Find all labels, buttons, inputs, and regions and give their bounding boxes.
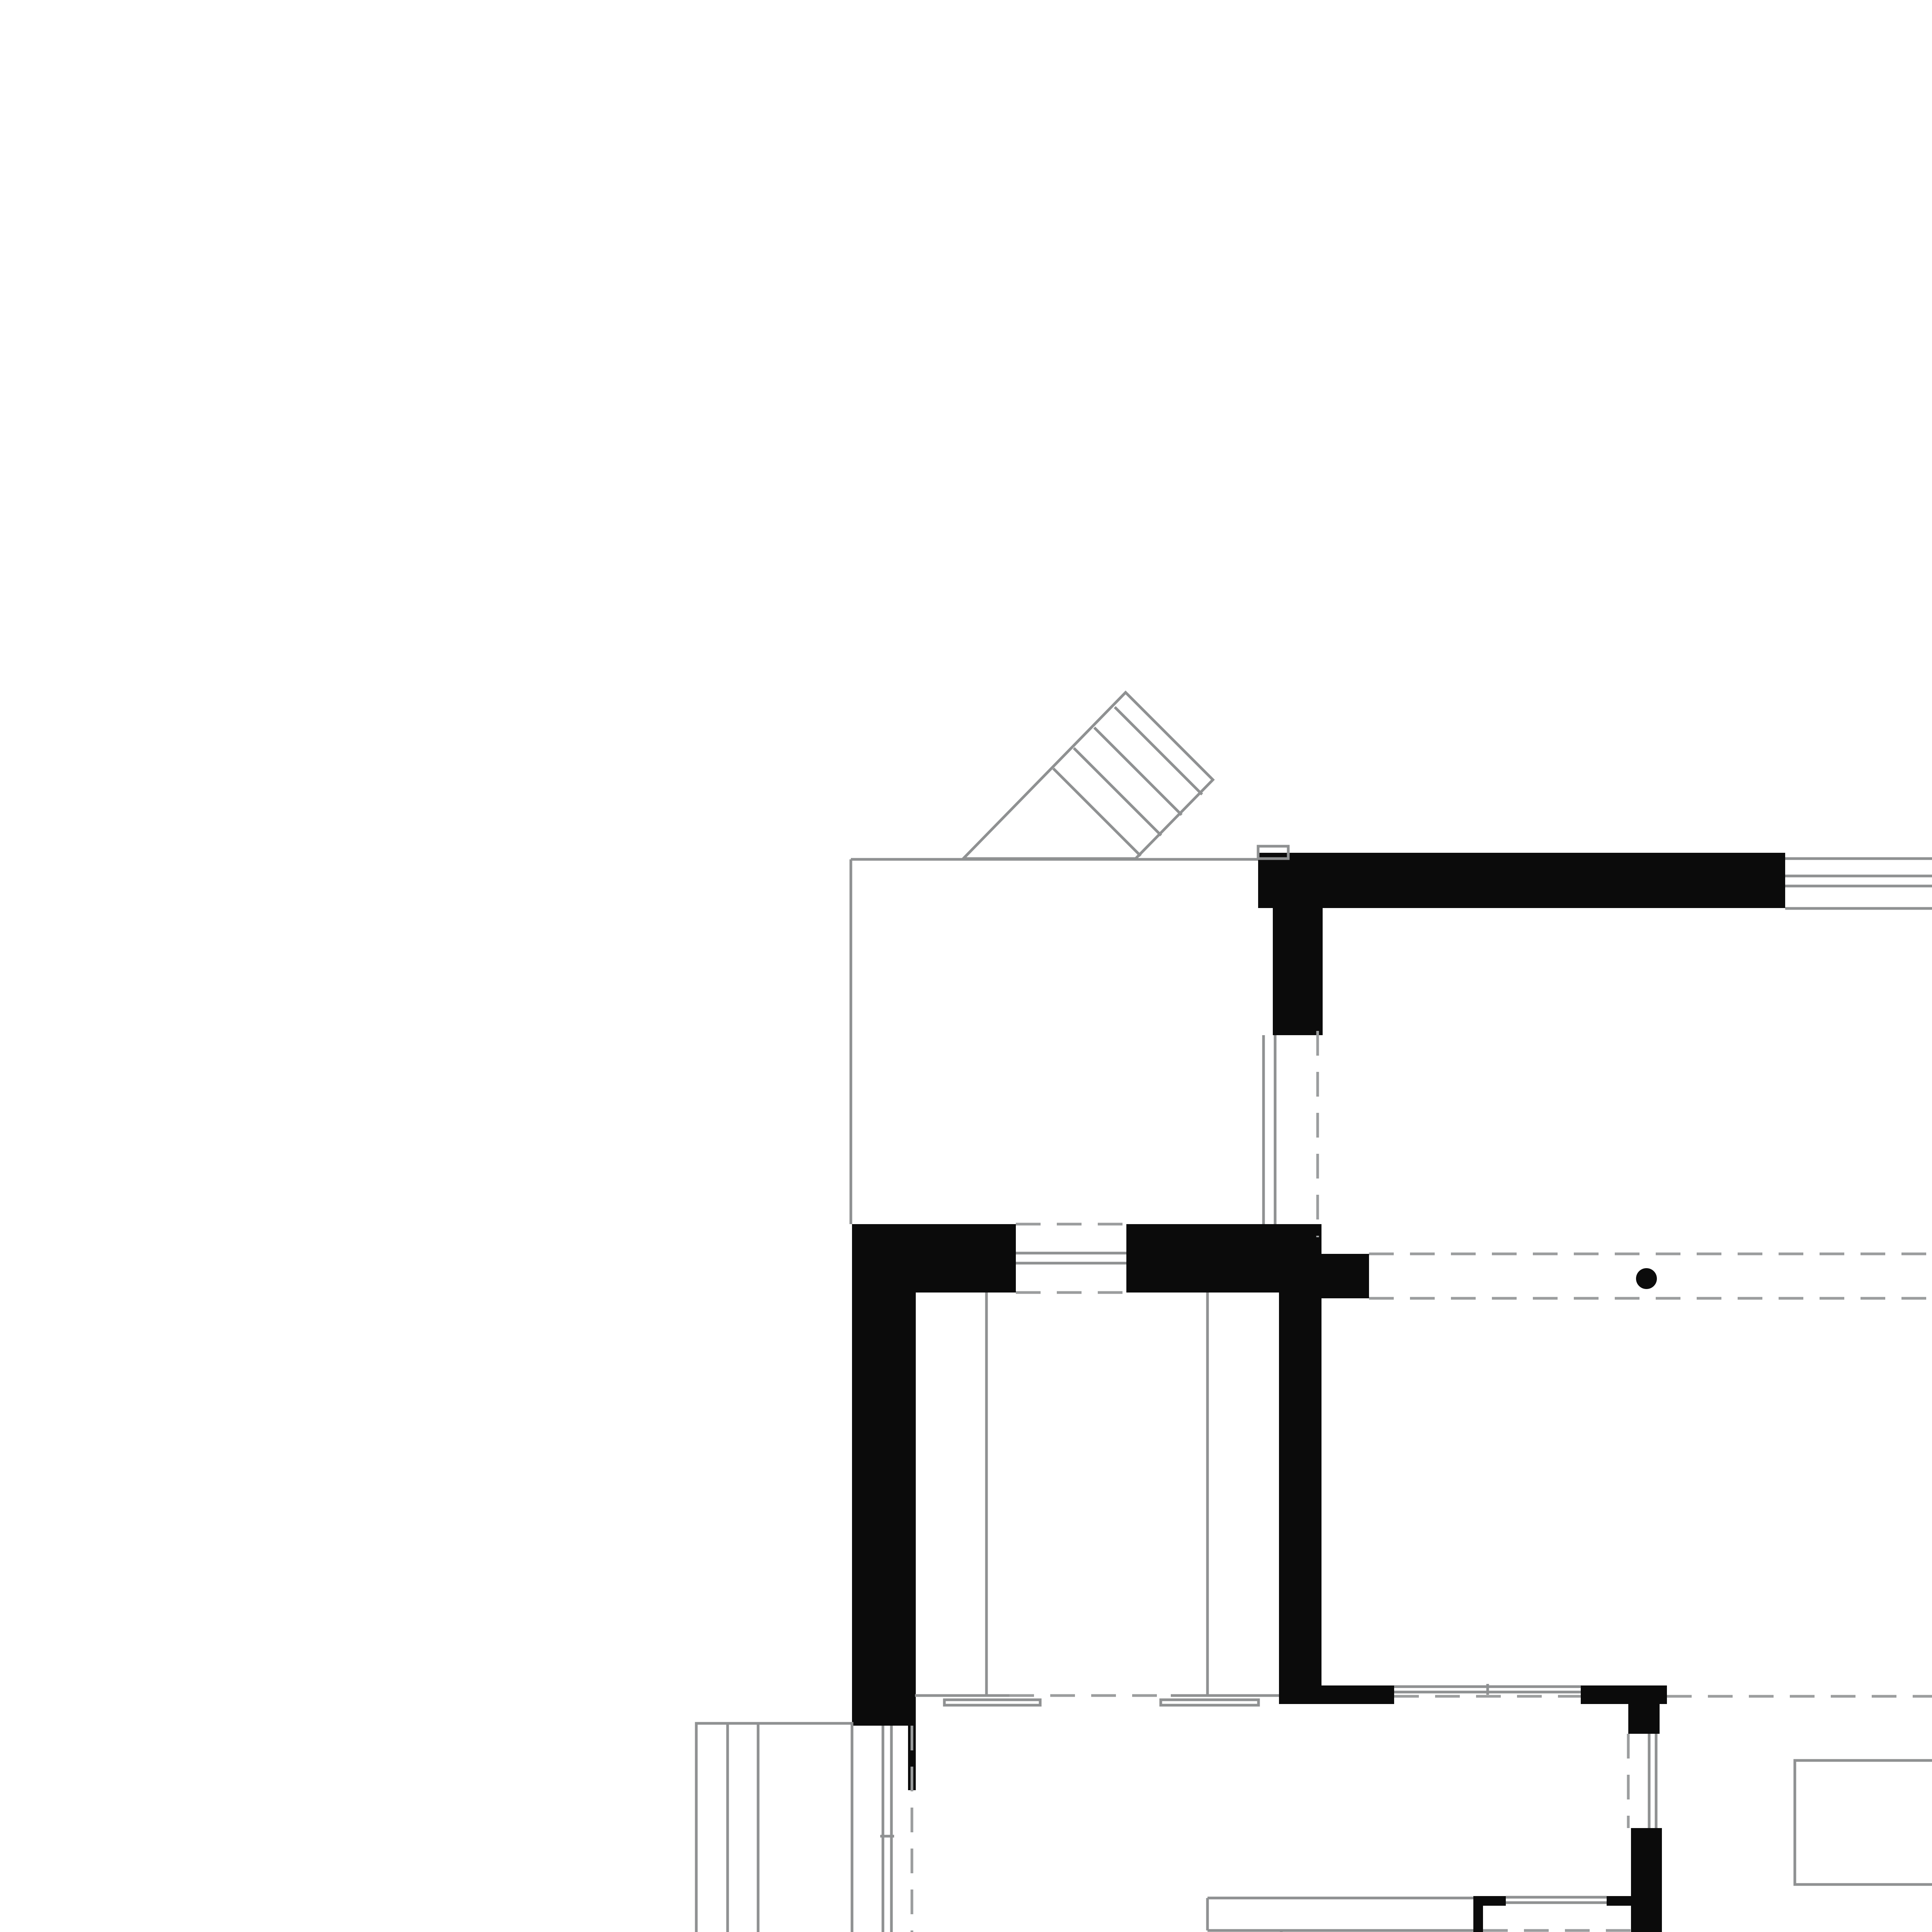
- sliding-door-leaf-east: [1161, 1700, 1259, 1705]
- wall-partition-east: [1126, 1224, 1321, 1293]
- floor-plan-canvas: [0, 0, 1932, 1932]
- floor-plan-page: [0, 0, 1932, 1932]
- wall-divider-post: [1581, 1685, 1667, 1704]
- wall-partition-stub: [1321, 1254, 1369, 1298]
- wall-hall-arm: [1321, 1685, 1394, 1704]
- sliding-door-leaf-west: [944, 1700, 1040, 1705]
- ramp-tread-3: [1094, 728, 1182, 815]
- wall-top-west: [1258, 853, 1785, 908]
- wall-divider-lower: [1631, 1828, 1662, 1932]
- wall-carport-east: [1273, 858, 1323, 1035]
- wall-left-mid: [852, 1224, 916, 1726]
- ramp-tread-4: [1115, 707, 1202, 794]
- ramp-tread-1: [1053, 769, 1141, 856]
- stair-newel-post: [1473, 1896, 1483, 1932]
- carport-ramp-outline: [963, 692, 1213, 859]
- wall-interior-west: [1279, 1293, 1321, 1704]
- structural-column: [1636, 1268, 1657, 1289]
- stair-landing-stub: [1607, 1896, 1632, 1906]
- wall-divider-upper: [1628, 1704, 1660, 1734]
- wall-partition-west: [916, 1224, 1016, 1293]
- ramp-tread-2: [1074, 748, 1161, 835]
- dining-table: [1795, 1760, 1932, 1884]
- entry-exterior-steps: [696, 1723, 852, 1932]
